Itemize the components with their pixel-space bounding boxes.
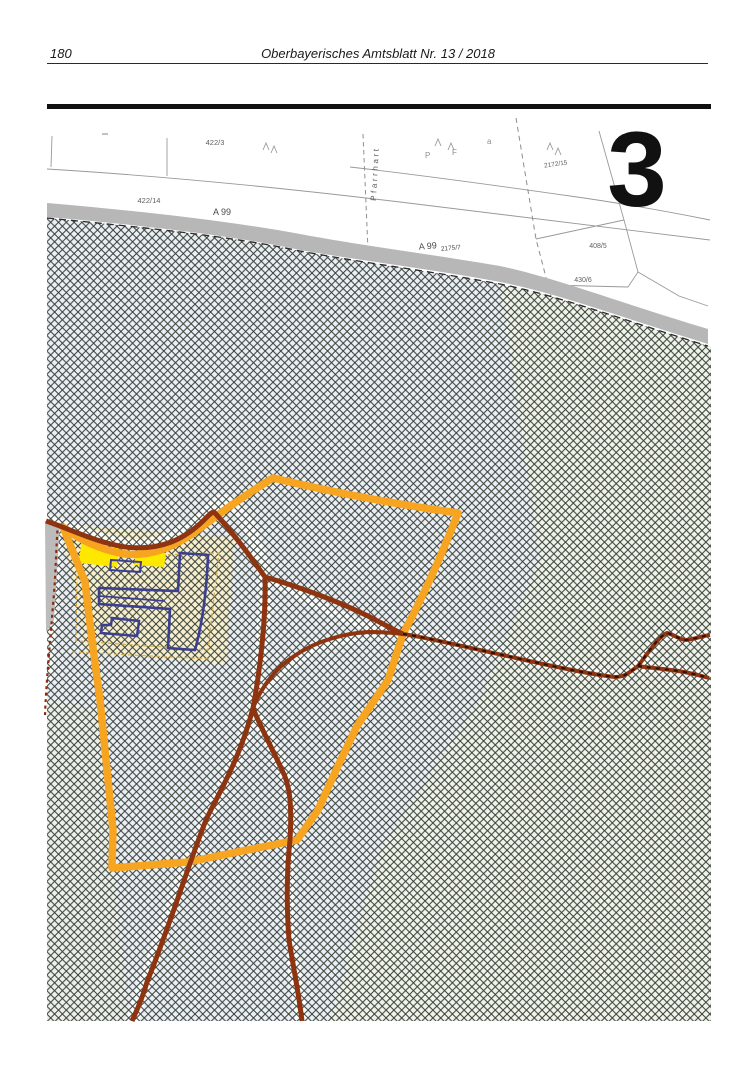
svg-text:2175/7: 2175/7 <box>441 244 462 253</box>
svg-text:A 99: A 99 <box>213 207 231 217</box>
svg-text:P: P <box>425 151 430 160</box>
svg-text:2172/15: 2172/15 <box>544 159 569 169</box>
svg-text:Pfarrhart: Pfarrhart <box>369 146 381 201</box>
svg-text:A 99: A 99 <box>418 240 437 252</box>
svg-text:F: F <box>452 148 457 157</box>
svg-text:a: a <box>487 137 492 146</box>
svg-text:408/5: 408/5 <box>589 243 607 250</box>
svg-text:422/3: 422/3 <box>206 138 225 147</box>
svg-text:430/6: 430/6 <box>574 277 592 284</box>
svg-text:422/14: 422/14 <box>138 196 161 205</box>
svg-text:3: 3 <box>607 109 667 229</box>
